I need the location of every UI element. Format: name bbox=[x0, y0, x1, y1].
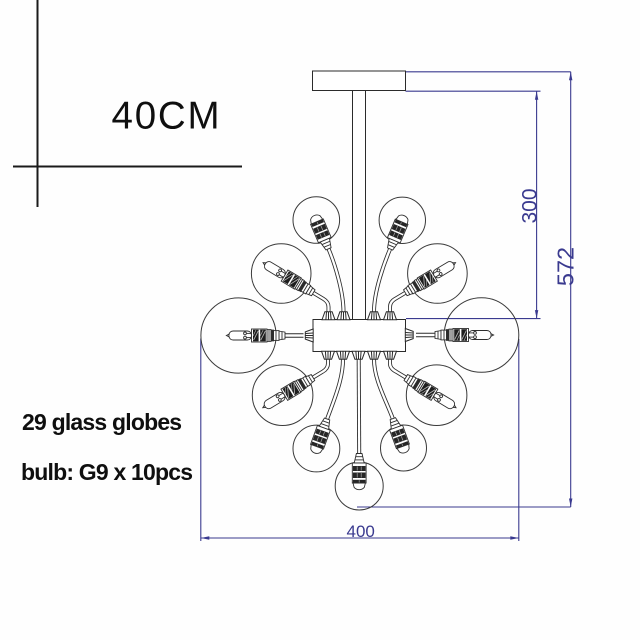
svg-text:40CM: 40CM bbox=[112, 95, 222, 138]
svg-text:400: 400 bbox=[347, 522, 375, 541]
svg-text:572: 572 bbox=[553, 247, 579, 286]
svg-text:29 glass globes: 29 glass globes bbox=[22, 409, 181, 435]
svg-text:300: 300 bbox=[519, 188, 542, 223]
svg-text:bulb: G9 x 10pcs: bulb: G9 x 10pcs bbox=[21, 459, 192, 485]
